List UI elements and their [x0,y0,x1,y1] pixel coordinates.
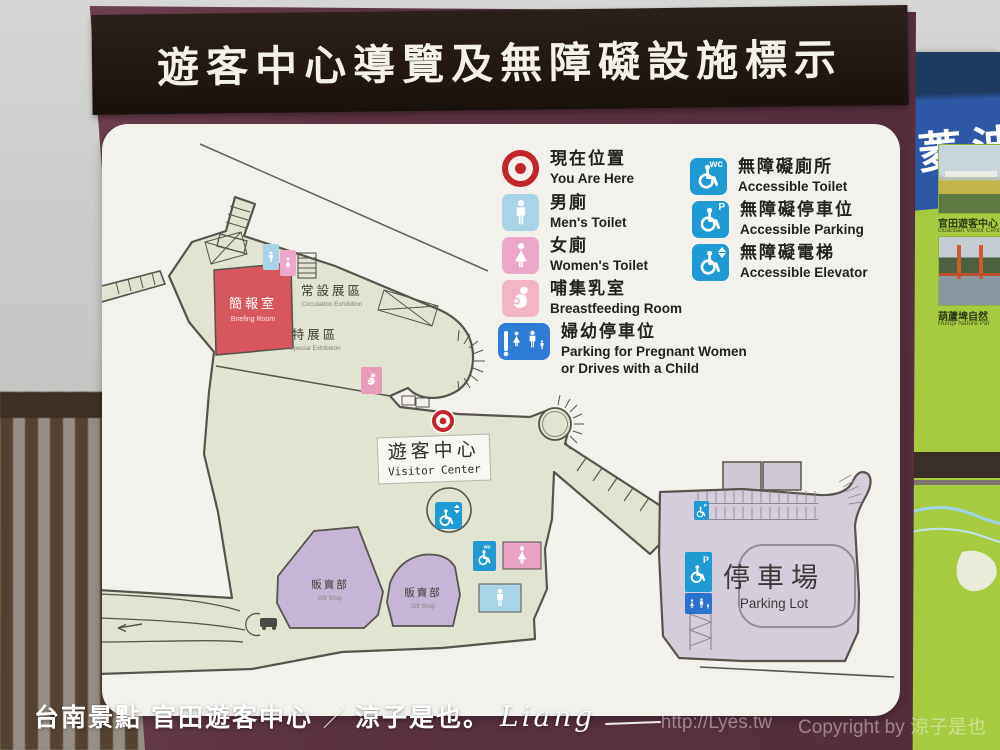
map-panel: 簡報室 Briefing Room 常設展區 Circulation Exhib… [102,124,900,716]
wheelchair-wc-icon: wc [690,158,727,195]
legend-item-mens-toilet: 男廁 Men's Toilet [502,194,626,232]
permanent-exhibition-label-en: Circulation Exhibition [302,301,363,308]
gift-shop-2-label-zh: 販賣部 [404,586,442,599]
platform-rects [402,396,429,407]
foreground-rail-line [912,480,1000,485]
watermark-copyright: Copyright by 涼子是也 [798,712,986,739]
wheelchair-elevator-icon [692,244,729,281]
briefing-room-label-zh: 簡報室 [229,296,277,311]
footer-caption: 台南景點 官田遊客中心 ／ 涼子是也。 Liang [34,698,661,734]
legend-item-accessible-parking: P 無障礙停車位 Accessible Parking [692,201,864,239]
caption-signature: Liang [500,700,595,733]
visitor-center-label-zh: 遊客中心 [387,438,480,463]
parking-exit-road [700,667,894,677]
briefing-room-label-en: Briefing Room [231,316,276,323]
map-family-parking-icon [685,593,712,614]
briefing-room: 簡報室 Briefing Room [214,263,293,355]
map-accessible-parking-small-icon: P [694,501,709,520]
url-watermark: http://Lyes.tw Copyright by 涼子是也 [661,712,986,739]
bridge-deck [939,273,1000,276]
map-accessible-parking-large-icon: P [685,552,712,592]
title-band: 遊客中心導覽及無障礙設施標示 [91,5,908,115]
wing-womens-toilet-icon [280,250,296,276]
wheelchair-p-icon: P [692,201,729,238]
special-exhibition-label-en: Special Exhibition [289,345,341,352]
foreground-rail-bar [912,452,1000,478]
legend-item-womens-toilet: 女廁 Women's Toilet [502,237,648,275]
west-walkway [102,271,165,303]
legend-item-breastfeeding: 哺集乳室 Breastfeeding Room [502,280,682,318]
legend-item-you-are-here: 現在位置 You Are Here [502,150,634,188]
svg-text:P: P [703,555,709,565]
side-sign-photo-visitor-center [938,144,1000,214]
side-sign-caption2-en: Hulupi Nature Par [938,320,990,327]
visitor-center-label-box: 遊客中心 Visitor Center [377,434,491,484]
side-sign: 菱波 官田遊客中心 Guantian Visitor Cent 葫蘆埤自然 Hu… [912,52,1000,750]
svg-text:P: P [704,503,707,508]
breastfeeding-icon [502,280,539,317]
map-womens-toilet-room [503,542,541,569]
map-mens-toilet-room [479,584,521,612]
parking-lot-label-en: Parking Lot [740,596,809,611]
caption-separator: ／ [323,701,345,733]
signature-flourish [605,721,661,725]
gift-shop-2-label-en: Gift Shop [410,604,436,610]
wing-mens-toilet-icon [263,244,279,270]
map-accessible-toilet-icon: wc [473,541,496,571]
caption-author: 涼子是也。 [355,698,490,734]
family-parking-icon [498,323,550,360]
parking-lot: P P 停車場 Parking Lot [659,462,894,677]
gift-shop-1-label-zh: 販賣部 [311,578,349,591]
you-are-here-marker [431,409,456,434]
svg-text:wc: wc [483,545,491,551]
special-exhibition-label-zh: 特展區 [292,327,339,342]
permanent-exhibition-label-zh: 常設展區 [301,283,363,298]
gift-shop-1-label-en: Gift Shop [317,596,343,602]
side-sign-caption1-en: Guantian Visitor Cent [938,227,1000,234]
man-icon [502,194,539,231]
scene: 菱波 官田遊客中心 Guantian Visitor Cent 葫蘆埤自然 Hu… [0,0,1000,750]
side-sign-mini-map [912,492,1000,612]
legend-item-family-parking: 婦幼停車位 Parking for Pregnant Women or Driv… [498,323,747,377]
legend-item-accessible-toilet: wc 無障礙廁所 Accessible Toilet [690,158,847,196]
side-sign-photo-nature-park [938,236,1000,306]
photo-building-roof [945,171,997,177]
map-accessible-elevator-icon [435,502,462,529]
caption-location: 台南景點 官田遊客中心 [34,698,313,734]
sign-title: 遊客中心導覽及無障礙設施標示 [157,25,844,94]
parking-lot-label-zh: 停車場 [723,563,825,593]
watermark-url: http://Lyes.tw [661,712,772,739]
legend-item-accessible-elevator: 無障礙電梯 Accessible Elevator [692,244,868,282]
woman-icon [502,237,539,274]
you-are-here-icon [502,150,539,187]
map-breastfeeding-icon [361,367,382,394]
